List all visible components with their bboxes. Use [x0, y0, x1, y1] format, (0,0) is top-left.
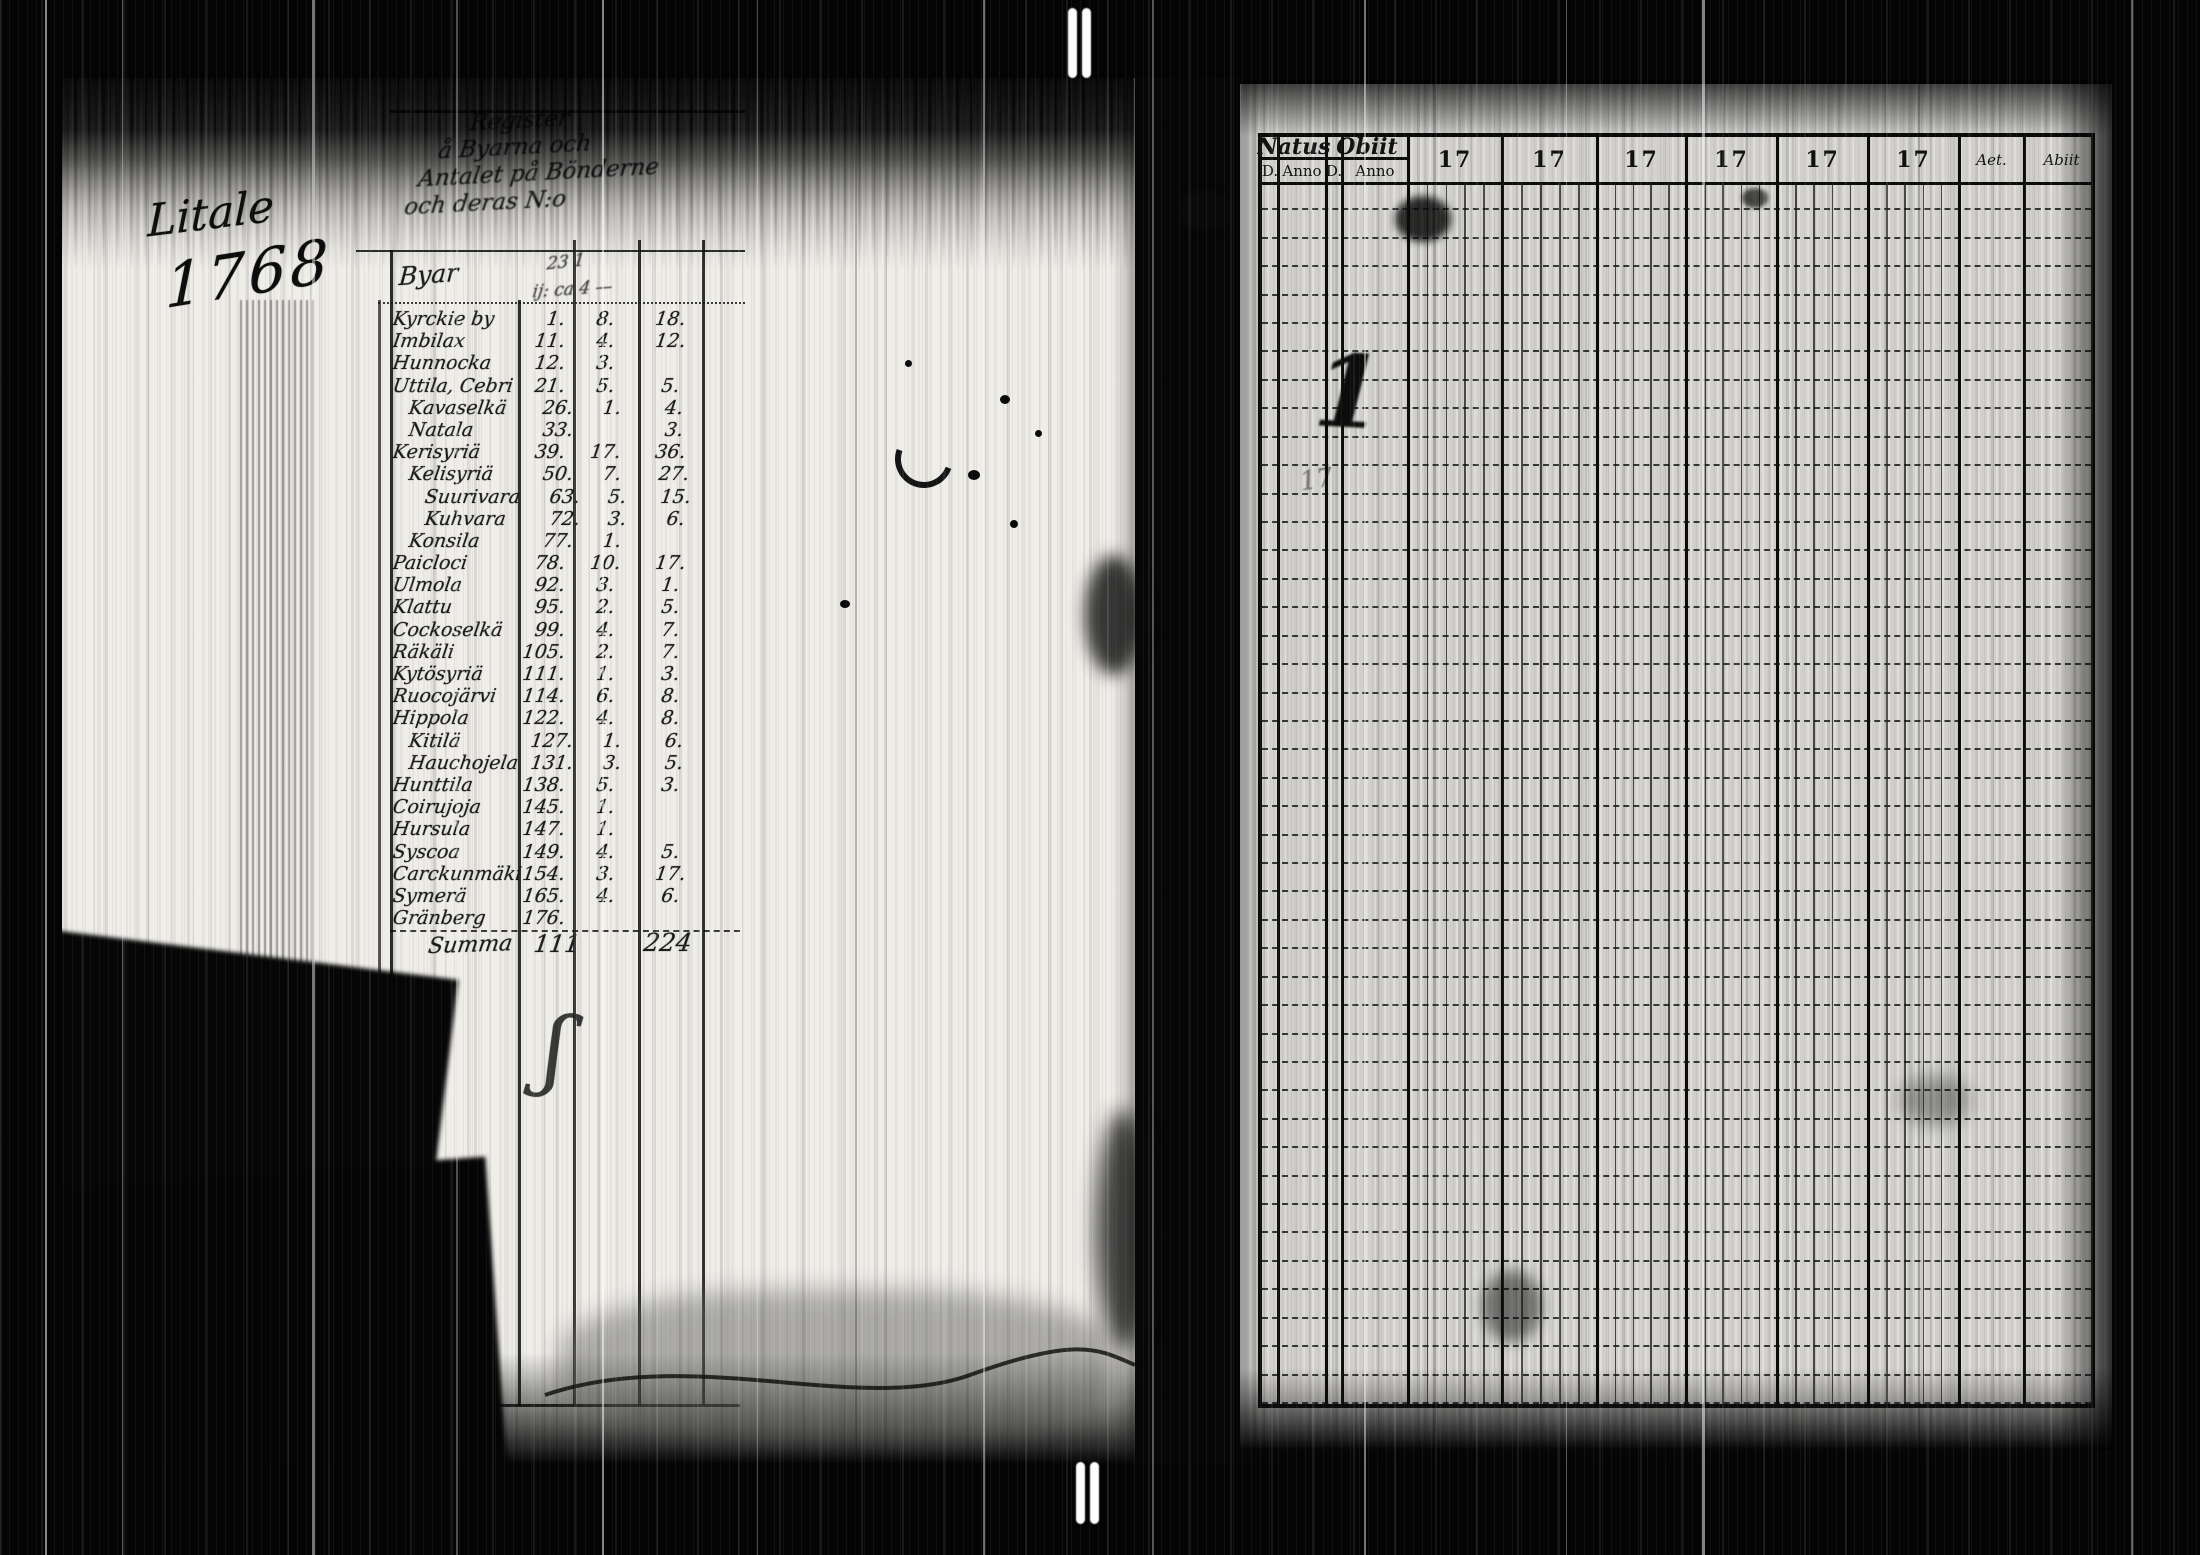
register-empty-row [1262, 551, 2091, 579]
village-count-2: 7. [636, 641, 704, 663]
year-column-header: 17 [1686, 137, 1777, 182]
gutter-stain [1096, 1110, 1152, 1350]
register-empty-row [1262, 210, 2091, 238]
registration-mark [1090, 1462, 1099, 1524]
village-page-number: 145. [515, 796, 574, 818]
year-column-header: 17 [1408, 137, 1502, 182]
village-page-number: 176. [515, 907, 574, 929]
ink-speck [968, 470, 980, 480]
village-count-2 [636, 907, 704, 929]
village-row: Hunttila138.5.3. [391, 774, 706, 796]
village-count-1: 3. [571, 352, 639, 374]
village-name: Ulmola [391, 574, 518, 596]
village-page-number: 50. [526, 463, 583, 485]
village-count-2: 3. [641, 419, 706, 441]
village-count-2 [641, 530, 706, 552]
village-row: Syscoa149.4.5. [391, 841, 706, 863]
village-name: Kerisyriä [391, 441, 518, 463]
register-empty-row [1262, 1035, 2091, 1063]
register-empty-row [1262, 1233, 2091, 1261]
village-rows: Kyrckie by1.8.18.Imbilax11.4.12.Hunnocka… [393, 308, 705, 929]
register-empty-row [1262, 608, 2091, 636]
village-page-number: 127. [526, 730, 583, 752]
village-page-number: 39. [515, 441, 574, 463]
register-empty-row [1262, 1177, 2091, 1205]
village-page-number: 1. [515, 308, 574, 330]
obiit-anno-subheader: Anno [1342, 160, 1408, 182]
village-count-1: 5. [571, 375, 639, 397]
register-empty-row [1262, 949, 2091, 977]
village-name: Kitilä [391, 730, 528, 752]
village-row: Coirujoja145.1. [391, 796, 706, 818]
village-row: Kavaselkä26.1.4. [391, 397, 706, 419]
village-name: Symerä [391, 885, 518, 907]
village-count-2: 5. [641, 752, 706, 774]
register-empty-row [1262, 495, 2091, 523]
village-count-2: 36. [636, 441, 704, 463]
village-count-1: 3. [571, 574, 639, 596]
village-page-number: 72. [535, 508, 589, 530]
village-row: Symerä165.4.6. [391, 885, 706, 907]
register-empty-row [1262, 864, 2091, 892]
natus-column-header: Natus [1262, 137, 1326, 160]
village-page-number: 33. [526, 419, 583, 441]
register-empty-row [1262, 1319, 2091, 1347]
register-empty-row [1262, 1063, 2091, 1091]
village-page-number: 77. [526, 530, 583, 552]
village-count-2: 3. [636, 774, 704, 796]
village-count-1: 4. [571, 841, 639, 863]
register-empty-row [1262, 523, 2091, 551]
village-count-1: 1. [571, 796, 639, 818]
village-page-number: 138. [515, 774, 574, 796]
village-row: Konsila77.1. [391, 530, 706, 552]
year-column-header: 17 [1502, 137, 1597, 182]
village-count-2: 18. [636, 308, 704, 330]
village-count-1: 6. [571, 685, 639, 707]
village-count-2: 4. [641, 397, 706, 419]
village-name: Hauchojela [391, 752, 528, 774]
ink-speck [1010, 520, 1018, 528]
register-empty-row [1262, 1006, 2091, 1034]
smudge [1482, 1270, 1542, 1342]
village-row: Uttila, Cebri21.5.5. [391, 375, 706, 397]
village-page-number: 11. [515, 330, 574, 352]
village-count-1: 2. [571, 596, 639, 618]
village-name: Konsila [391, 530, 528, 552]
village-name: Kyrckie by [391, 308, 518, 330]
village-name: Cockoselkä [391, 619, 518, 641]
register-empty-row [1262, 381, 2091, 409]
natus-anno-subheader: Anno [1278, 160, 1326, 182]
gutter-stain [1085, 555, 1143, 675]
village-row: Hursula147.1. [391, 818, 706, 840]
village-count-1 [571, 907, 639, 929]
village-page-number: 26. [526, 397, 583, 419]
registration-mark [1076, 1462, 1085, 1524]
village-name: Kuhvara [391, 508, 538, 530]
village-row: Kytösyriä111.1.3. [391, 663, 706, 685]
scanned-parish-register-spread: Litale 1768 Register å Byarna och Antale… [0, 0, 2200, 1555]
village-row: Ruocojärvi114.6.8. [391, 685, 706, 707]
village-name: Natala [391, 419, 528, 441]
register-empty-row [1262, 324, 2091, 352]
village-count-2 [636, 818, 704, 840]
smudge [1900, 1075, 1970, 1125]
village-row: Hunnocka12.3. [391, 352, 706, 374]
village-row: Kuhvara72.3.6. [391, 508, 706, 530]
village-count-2: 17. [636, 863, 704, 885]
registration-mark [1082, 8, 1091, 78]
register-empty-row [1262, 921, 2091, 949]
village-row: Ulmola92.3.1. [391, 574, 706, 596]
village-name: Carckunmäki [391, 863, 518, 885]
village-count-2: 5. [636, 596, 704, 618]
ink-speck [1035, 430, 1042, 437]
village-name: Imbilax [391, 330, 518, 352]
village-count-1: 10. [571, 552, 639, 574]
register-empty-row [1262, 466, 2091, 494]
village-count-2: 6. [636, 885, 704, 907]
register-empty-row [1262, 1120, 2091, 1148]
register-empty-row [1262, 1148, 2091, 1176]
village-row: Suurivara63.5.15. [391, 486, 706, 508]
village-row: Klattu95.2.5. [391, 596, 706, 618]
village-count-2: 17. [636, 552, 704, 574]
village-page-number: 147. [515, 818, 574, 840]
village-page-number: 122. [515, 707, 574, 729]
village-page-number: 114. [515, 685, 574, 707]
village-count-1: 4. [571, 619, 639, 641]
village-count-2: 27. [641, 463, 706, 485]
village-page-number: 149. [515, 841, 574, 863]
village-page-number: 21. [515, 375, 574, 397]
village-count-1 [579, 419, 644, 441]
village-page-number: 95. [515, 596, 574, 618]
aetas-column-header: Aet. [1959, 137, 2024, 182]
village-page-number: 12. [515, 352, 574, 374]
village-name: Hunnocka [391, 352, 518, 374]
village-name: Uttila, Cebri [391, 375, 518, 397]
village-name: Kelisyriä [391, 463, 528, 485]
village-count-2: 1. [636, 574, 704, 596]
village-count-1: 1. [579, 530, 644, 552]
village-row: Kitilä127.1.6. [391, 730, 706, 752]
village-page-number: 63. [535, 486, 589, 508]
village-page-number: 105. [515, 641, 574, 663]
register-empty-row [1262, 892, 2091, 920]
village-count-2: 6. [641, 730, 706, 752]
village-name: Kytösyriä [391, 663, 518, 685]
register-empty-row [1262, 1205, 2091, 1233]
village-name: Paicloci [391, 552, 518, 574]
streak-stain [240, 300, 314, 1030]
register-empty-row [1262, 296, 2091, 324]
register-empty-row [1262, 1376, 2091, 1404]
ink-speck [840, 600, 850, 608]
scan-border [0, 0, 2200, 78]
village-count-2: 5. [636, 375, 704, 397]
village-page-number: 131. [526, 752, 583, 774]
village-count-2 [636, 796, 704, 818]
register-empty-row [1262, 580, 2091, 608]
scan-border [0, 1464, 2200, 1555]
obiit-column-header: Obiit [1326, 137, 1408, 160]
register-empty-row [1262, 267, 2091, 295]
register-empty-row [1262, 694, 2091, 722]
village-row: Natala33.3. [391, 419, 706, 441]
register-empty-row [1262, 665, 2091, 693]
village-count-2: 3. [636, 663, 704, 685]
village-count-1: 3. [571, 863, 639, 885]
village-count-2: 7. [636, 619, 704, 641]
village-count-2 [636, 352, 704, 374]
village-page-number: 154. [515, 863, 574, 885]
scan-border [0, 0, 62, 1555]
village-count-1: 8. [571, 308, 639, 330]
village-page-number: 92. [515, 574, 574, 596]
village-row: Gränberg176. [391, 907, 706, 929]
scratch-line [540, 1320, 1140, 1430]
village-row: Carckunmäki154.3.17. [391, 863, 706, 885]
village-count-1: 2. [571, 641, 639, 663]
summa-total-persons: 224 [642, 928, 694, 957]
register-empty-row [1262, 779, 2091, 807]
village-count-1: 1. [579, 397, 644, 419]
ink-speck [905, 360, 912, 367]
village-name: Räkäli [391, 641, 518, 663]
village-count-1: 4. [571, 885, 639, 907]
ink-speck [1000, 395, 1010, 404]
year-column-header: 17 [1597, 137, 1686, 182]
village-count-1: 7. [579, 463, 644, 485]
village-name: Gränberg [391, 907, 518, 929]
village-name: Suurivara [391, 486, 538, 508]
village-page-number: 78. [515, 552, 574, 574]
village-count-1: 3. [586, 508, 648, 530]
village-page-number: 165. [515, 885, 574, 907]
ink-blot [1742, 188, 1768, 208]
year-column-header: 17 [1868, 137, 1959, 182]
village-count-1: 3. [579, 752, 644, 774]
village-row: Cockoselkä99.4.7. [391, 619, 706, 641]
register-empty-row [1262, 409, 2091, 437]
printed-register-table: Natus Obiit D. Anno D. Anno Aet. Abiit 1… [1258, 133, 2095, 1408]
summa-total-households: 111 [532, 930, 582, 958]
right-exposure-band [2056, 84, 2114, 1450]
registration-mark [1068, 8, 1077, 78]
register-empty-row [1262, 1262, 2091, 1290]
register-empty-row [1262, 807, 2091, 835]
register-empty-row [1262, 836, 2091, 864]
village-row: Paicloci78.10.17. [391, 552, 706, 574]
village-row: Kelisyriä50.7.27. [391, 463, 706, 485]
village-count-2: 8. [636, 707, 704, 729]
village-count-2: 12. [636, 330, 704, 352]
village-count-1: 1. [579, 730, 644, 752]
village-name: Syscoa [391, 841, 518, 863]
village-name: Ruocojärvi [391, 685, 518, 707]
village-row: Imbilax11.4.12. [391, 330, 706, 352]
village-name: Hippola [391, 707, 518, 729]
village-page-number: 99. [515, 619, 574, 641]
register-empty-row [1262, 1347, 2091, 1375]
village-row: Räkäli105.2.7. [391, 641, 706, 663]
top-exposure-band [60, 70, 1135, 270]
village-name: Klattu [391, 596, 518, 618]
village-row: Hippola122.4.8. [391, 707, 706, 729]
village-count-1: 1. [571, 663, 639, 685]
register-empty-row [1262, 637, 2091, 665]
village-count-1: 5. [586, 486, 648, 508]
year-column-header: 17 [1777, 137, 1868, 182]
village-row: Kyrckie by1.8.18. [391, 308, 706, 330]
register-empty-row [1262, 750, 2091, 778]
village-name: Kavaselkä [391, 397, 528, 419]
village-count-2: 6. [645, 508, 707, 530]
register-empty-row [1262, 438, 2091, 466]
village-count-2: 5. [636, 841, 704, 863]
village-count-2: 8. [636, 685, 704, 707]
register-empty-row [1262, 978, 2091, 1006]
top-exposure-band [1240, 80, 2112, 136]
register-empty-row [1262, 1290, 2091, 1318]
left-table-dotted-rule [378, 302, 745, 304]
ink-blot [1395, 196, 1451, 242]
register-empty-row [1262, 722, 2091, 750]
village-name: Coirujoja [391, 796, 518, 818]
left-table-vline [378, 300, 381, 1000]
village-row: Hauchojela131.3.5. [391, 752, 706, 774]
village-page-number: 111. [515, 663, 574, 685]
village-name: Hunttila [391, 774, 518, 796]
register-empty-row [1262, 239, 2091, 267]
village-count-2: 15. [645, 486, 707, 508]
register-empty-row [1262, 353, 2091, 381]
village-count-1: 1. [571, 818, 639, 840]
village-count-1: 5. [571, 774, 639, 796]
village-count-1: 4. [571, 707, 639, 729]
village-row: Kerisyriä39.17.36. [391, 441, 706, 463]
village-count-1: 4. [571, 330, 639, 352]
ink-blot [1178, 190, 1230, 232]
summa-label: Summa [426, 931, 514, 959]
village-count-1: 17. [571, 441, 639, 463]
register-empty-row [1262, 182, 2091, 210]
village-name: Hursula [391, 818, 518, 840]
scan-border [2112, 0, 2200, 1555]
